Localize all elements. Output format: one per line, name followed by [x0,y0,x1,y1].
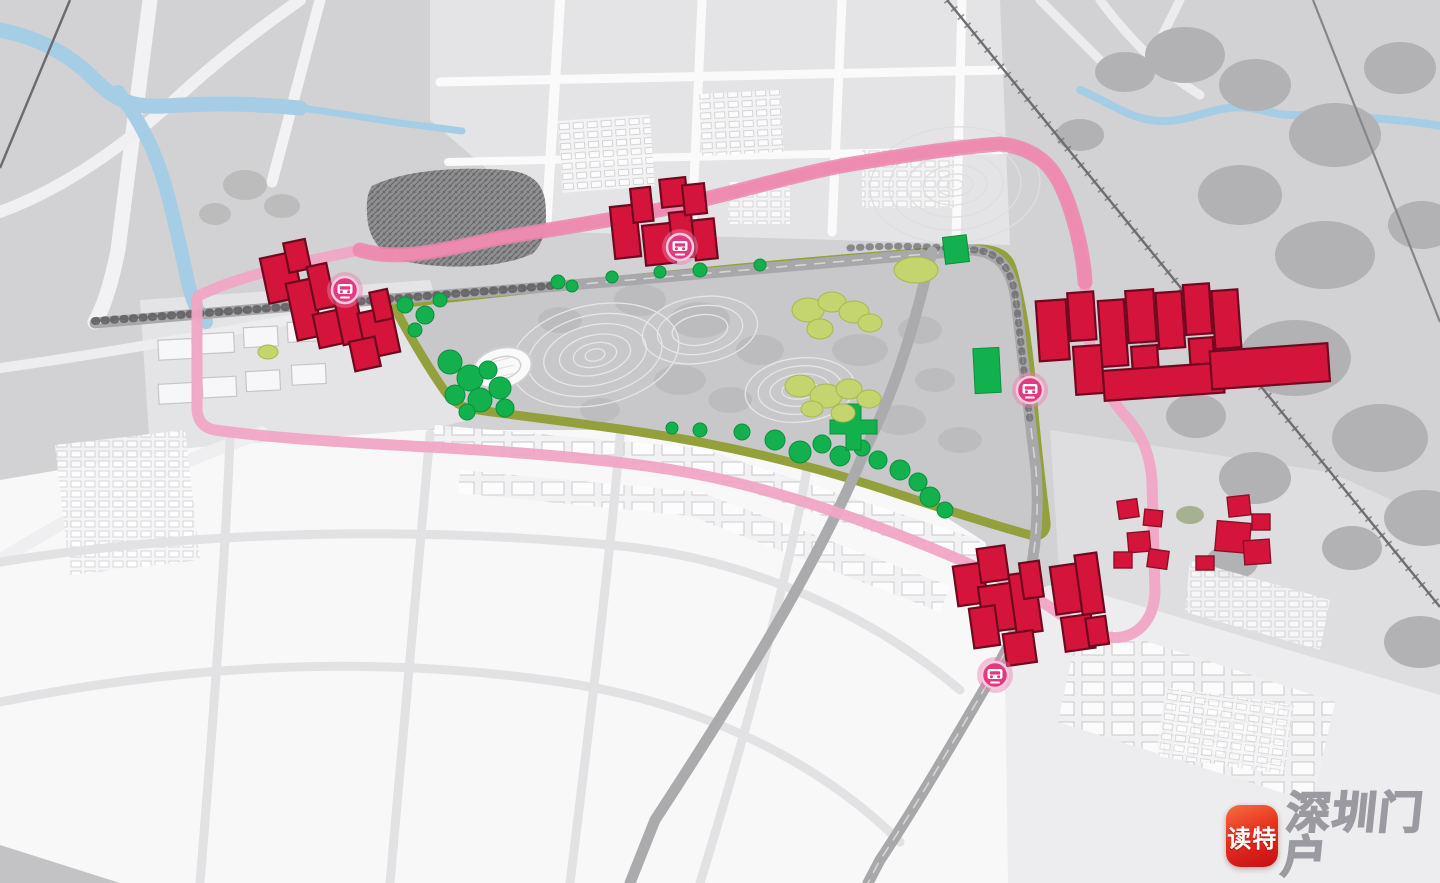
site-name-text: 深圳门户 [1280,792,1440,880]
dute-app-name: 读特 [1227,819,1277,854]
metro-station-north-icon [662,229,698,265]
village-trees [1176,506,1204,524]
map-canvas [0,0,1440,883]
watermark: 读特 深圳门户 [1226,792,1440,880]
masterplan-map: 读特 深圳门户 [0,0,1440,883]
metro-station-south-icon [977,657,1013,693]
dute-app-icon: 读特 [1226,805,1278,867]
metro-station-east-icon [1012,372,1048,408]
metro-station-west-icon [327,272,363,308]
